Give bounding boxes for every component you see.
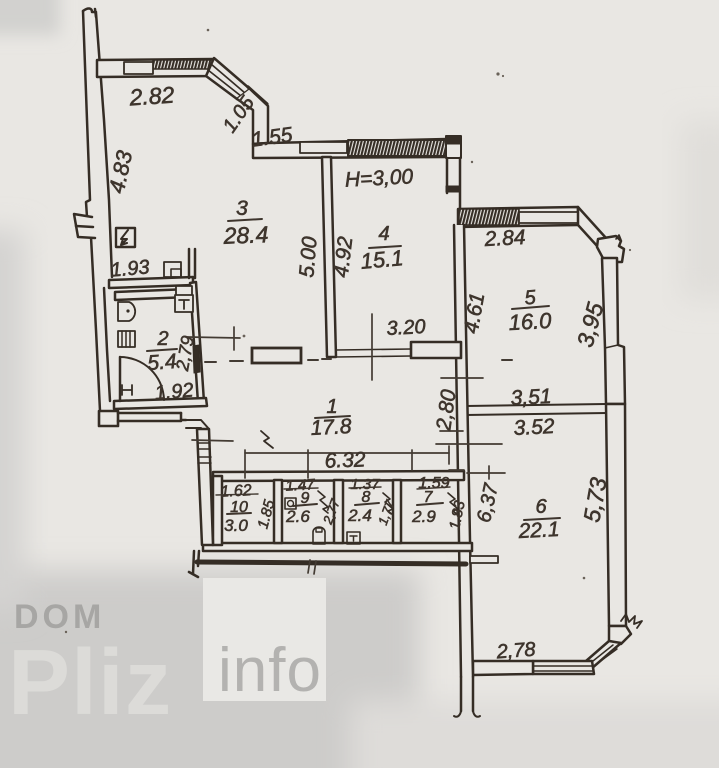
svg-text:3: 3 [236, 197, 248, 220]
svg-text:2.6: 2.6 [285, 507, 310, 526]
svg-text:16.0: 16.0 [508, 308, 553, 335]
svg-text:2,78: 2,78 [495, 639, 536, 664]
svg-text:22.1: 22.1 [517, 518, 560, 543]
svg-text:6: 6 [535, 496, 547, 518]
svg-text:Pliz: Pliz [8, 630, 172, 734]
svg-text:2.82: 2.82 [128, 81, 176, 110]
svg-text:info: info [218, 636, 322, 705]
svg-text:2.4: 2.4 [347, 506, 372, 525]
svg-text:5.00: 5.00 [295, 235, 322, 278]
svg-text:15.1: 15.1 [360, 245, 405, 274]
svg-text:3.0: 3.0 [224, 516, 248, 535]
svg-text:28.4: 28.4 [222, 221, 269, 249]
svg-text:3,51: 3,51 [510, 385, 552, 410]
svg-text:1.93: 1.93 [110, 256, 151, 281]
svg-text:3.52: 3.52 [513, 415, 555, 440]
svg-text:1.92: 1.92 [154, 379, 195, 404]
svg-text:3.20: 3.20 [386, 316, 426, 340]
svg-text:2.84: 2.84 [483, 226, 526, 251]
svg-text:H=3,00: H=3,00 [344, 165, 414, 192]
svg-text:1: 1 [326, 396, 337, 418]
svg-text:1.62: 1.62 [220, 482, 252, 501]
svg-text:6.32: 6.32 [324, 448, 366, 472]
svg-text:2.9: 2.9 [411, 507, 436, 526]
svg-text:4: 4 [378, 223, 389, 245]
svg-text:2: 2 [156, 328, 168, 350]
